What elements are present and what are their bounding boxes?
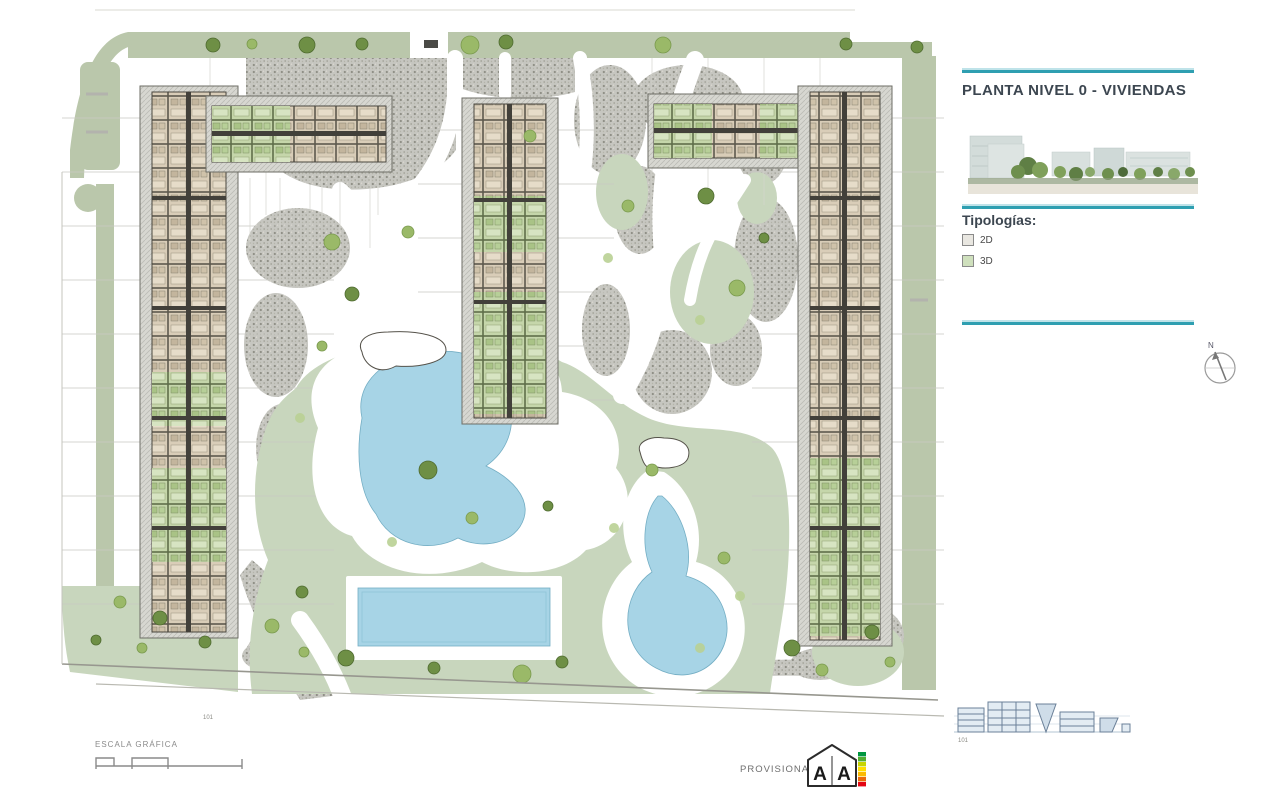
energy-rating-badge: A A <box>800 740 868 790</box>
energy-letter-left: A <box>813 764 827 785</box>
pool-lap <box>358 588 550 646</box>
scale-label: ESCALA GRÁFICA <box>95 740 178 749</box>
legend-item-3d: 3D <box>962 255 993 267</box>
elevation-caption: 101 <box>958 738 968 744</box>
north-arrow-icon: N <box>1196 338 1244 390</box>
legend-title: Tipologías: <box>962 212 1036 228</box>
energy-scale-bars <box>858 752 866 786</box>
pool-island-tree <box>419 461 437 479</box>
scale-bar <box>92 752 252 774</box>
elevation-sketch <box>952 692 1132 738</box>
band-notch <box>850 24 934 42</box>
legend-label-2d: 2D <box>980 235 993 246</box>
svg-text:N: N <box>1208 341 1214 350</box>
energy-letter-right: A <box>837 764 851 785</box>
plan-marker: 101 <box>203 715 214 721</box>
site-plan: 101 <box>0 0 950 800</box>
building-middle <box>462 98 558 424</box>
vehicle-mark <box>424 40 438 48</box>
building-right <box>798 86 892 646</box>
legend-swatch-2d <box>962 234 974 246</box>
building-top-left <box>206 96 392 172</box>
legend: 2D 3D <box>962 234 993 276</box>
legend-item-2d: 2D <box>962 234 993 246</box>
bottom-rule <box>962 320 1194 325</box>
title-rule-top <box>962 68 1194 73</box>
legend-rule <box>962 204 1194 209</box>
legend-swatch-3d <box>962 255 974 267</box>
page-title: PLANTA NIVEL 0 - VIVIENDAS <box>962 82 1186 99</box>
legend-label-3d: 3D <box>980 256 993 267</box>
drawing-sheet: 101 PLANTA NIVEL 0 - VIVIENDAS Tipología… <box>0 0 1280 800</box>
project-render-image <box>968 122 1198 194</box>
